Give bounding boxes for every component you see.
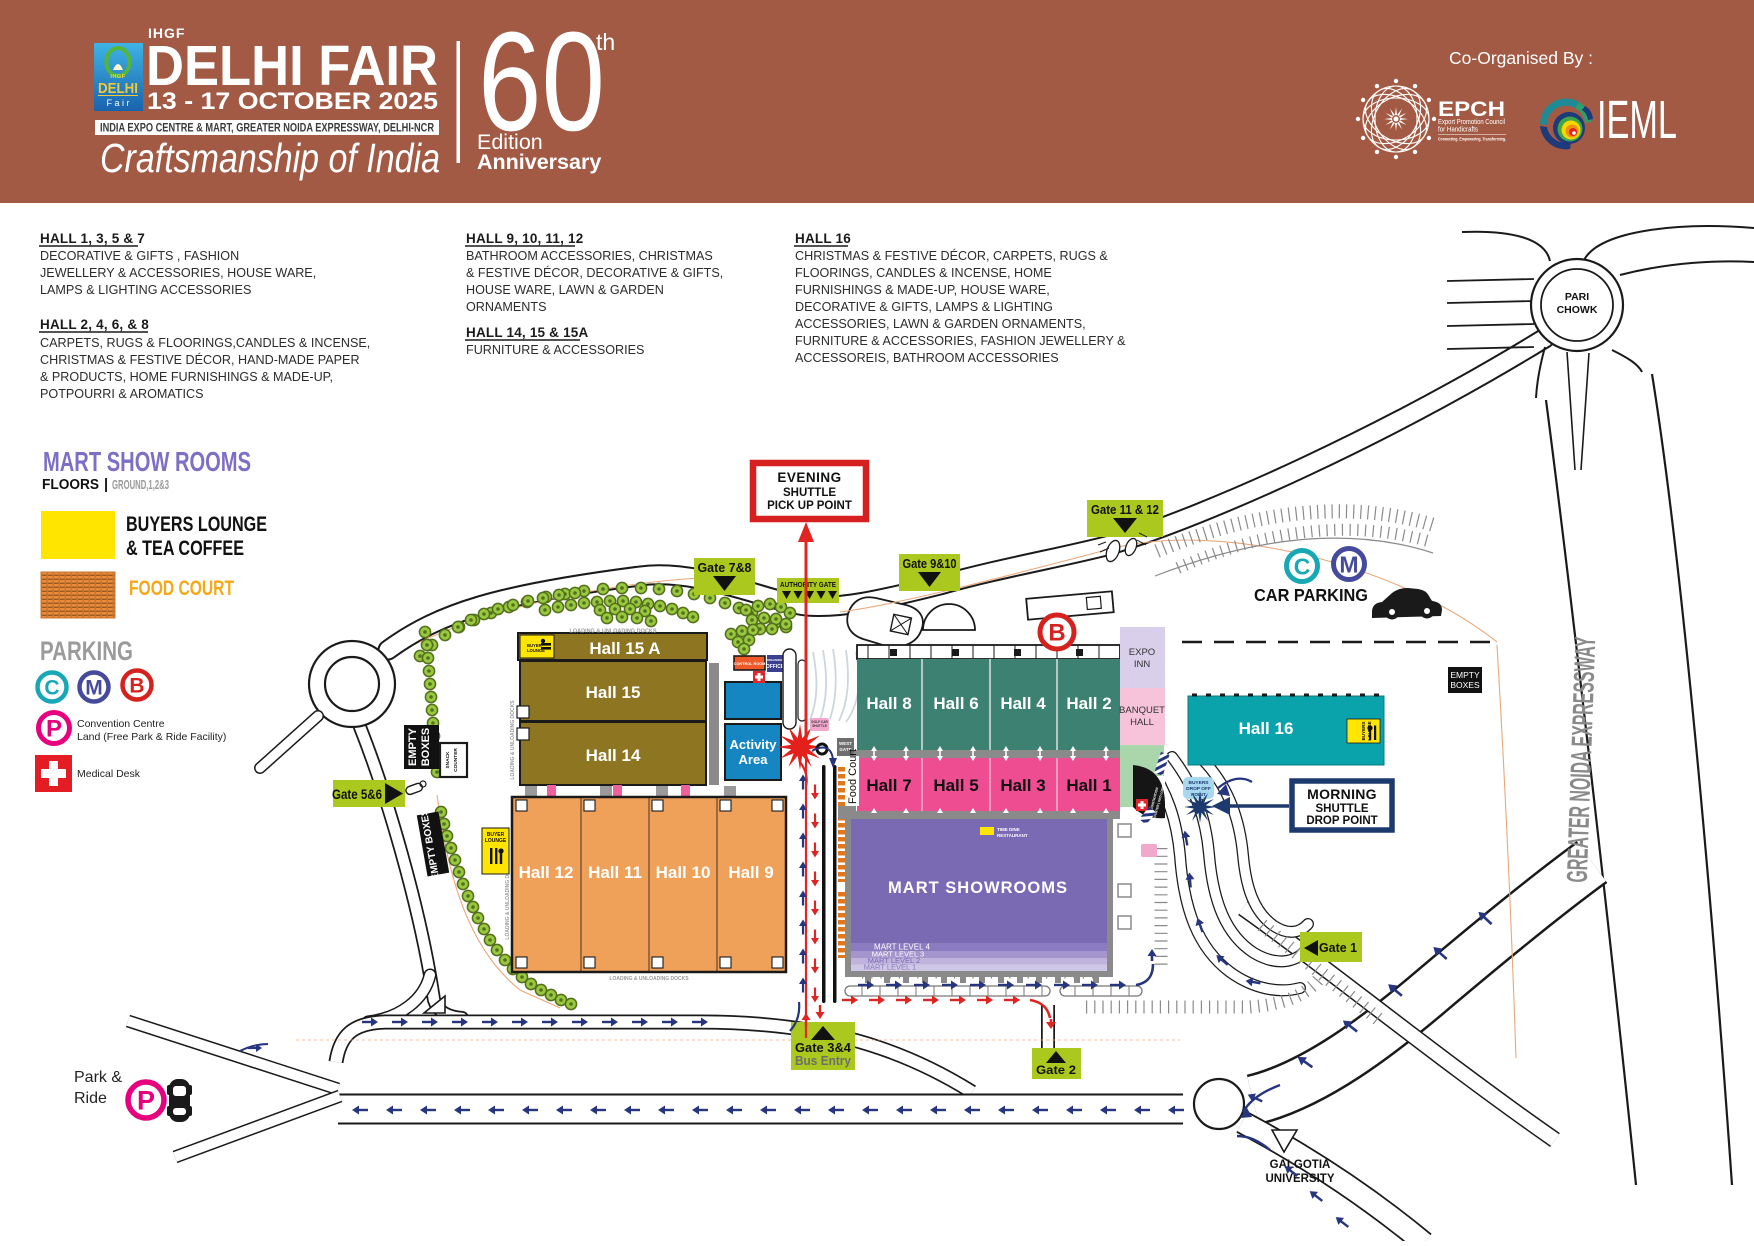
svg-text:PICK UP POINT: PICK UP POINT (767, 500, 852, 512)
svg-text:B: B (1048, 620, 1065, 647)
svg-text:SHUTTLE: SHUTTLE (1315, 803, 1368, 815)
svg-text:LAMPS & LIGHTING ACCESSORIES: LAMPS & LIGHTING ACCESSORIES (40, 283, 251, 297)
svg-text:ORGANIZER: ORGANIZER (767, 658, 784, 662)
svg-text:C: C (1294, 553, 1311, 579)
svg-text:OFFICE: OFFICE (766, 664, 785, 670)
svg-text:LOUNGE: LOUNGE (485, 838, 507, 844)
svg-text:GROUND,1,2&3: GROUND,1,2&3 (112, 477, 169, 492)
svg-text:Co-Organised By :: Co-Organised By : (1449, 48, 1593, 68)
svg-text:RESTAURANT: RESTAURANT (997, 833, 1028, 838)
svg-text:ACCESSORIES, LAWN & GARDEN ORN: ACCESSORIES, LAWN & GARDEN ORNAMENTS, (795, 317, 1086, 331)
svg-text:Gate 11 & 12: Gate 11 & 12 (1091, 502, 1159, 517)
svg-text:Hall 6: Hall 6 (933, 694, 978, 713)
svg-text:FLOORINGS, CANDLES & INCENSE,: FLOORINGS, CANDLES & INCENSE, HOME (795, 266, 1052, 280)
svg-text:Land (Free Park & Ride Facilit: Land (Free Park & Ride Facility) (77, 731, 226, 743)
svg-text:HALL 1, 3, 5 & 7: HALL 1, 3, 5 & 7 (40, 231, 145, 246)
svg-text:M: M (1339, 551, 1358, 577)
svg-text:Craftsmanship of India: Craftsmanship of India (100, 135, 440, 181)
svg-text:Hall 15: Hall 15 (586, 683, 641, 702)
svg-text:DECORATIVE & GIFTS, LAMPS & LI: DECORATIVE & GIFTS, LAMPS & LIGHTING (795, 300, 1053, 314)
svg-text:EXPO: EXPO (1129, 647, 1155, 658)
svg-text:Hall 7: Hall 7 (866, 776, 911, 795)
svg-text:IEML: IEML (1597, 90, 1677, 150)
svg-text:Hall 12: Hall 12 (519, 863, 574, 882)
svg-text:Medical Desk: Medical Desk (77, 768, 141, 780)
svg-text:TIME DINE: TIME DINE (997, 827, 1020, 832)
svg-text:INDIA EXPO CENTRE & MART, GREA: INDIA EXPO CENTRE & MART, GREATER NOIDA … (100, 123, 435, 135)
svg-text:Bus Entry: Bus Entry (795, 1053, 852, 1068)
svg-text:ORNAMENTS: ORNAMENTS (466, 300, 546, 314)
svg-text:HOUSE WARE, LAWN & GARDEN: HOUSE WARE, LAWN & GARDEN (466, 283, 664, 297)
svg-text:Gate 7&8: Gate 7&8 (698, 560, 752, 575)
svg-text:BATHROOM ACCESSORIES, CHRISTMA: BATHROOM ACCESSORIES, CHRISTMAS (466, 249, 713, 263)
svg-text:Gate 1: Gate 1 (1319, 941, 1357, 955)
svg-text:Hall 11: Hall 11 (588, 863, 642, 882)
svg-text:FURNITURE & ACCESSORIES: FURNITURE & ACCESSORIES (466, 343, 644, 357)
svg-text:Gate 9&10: Gate 9&10 (903, 556, 957, 571)
svg-text:HALL 16: HALL 16 (795, 231, 851, 246)
svg-text:CONTROL ROOM: CONTROL ROOM (734, 662, 766, 666)
svg-text:13 - 17 OCTOBER 2025: 13 - 17 OCTOBER 2025 (147, 88, 438, 115)
svg-text:BOXES: BOXES (420, 728, 432, 767)
svg-text:CAR PARKING: CAR PARKING (1254, 585, 1368, 605)
svg-text:PARI: PARI (1565, 291, 1589, 303)
svg-text:CHOWK: CHOWK (1557, 304, 1598, 316)
svg-text:Hall 5: Hall 5 (933, 776, 978, 795)
svg-text:AUTHORITY GATE: AUTHORITY GATE (780, 580, 836, 589)
svg-text:JEWELLERY & ACCESSORIES, HOUS: JEWELLERY & ACCESSORIES, HOUSE WARE, (40, 266, 316, 280)
svg-text:Hall 15 A: Hall 15 A (589, 639, 660, 658)
svg-text:COUNTER: COUNTER (453, 748, 459, 772)
svg-text:INN: INN (1134, 659, 1151, 670)
svg-text:Hall 4: Hall 4 (1000, 694, 1046, 713)
svg-text:& FESTIVE DÉCOR, DECORATIVE &: & FESTIVE DÉCOR, DECORATIVE & GIFTS, (466, 265, 723, 280)
svg-text:Gate 2: Gate 2 (1036, 1065, 1076, 1077)
svg-text:B: B (129, 675, 144, 698)
svg-text:HALL: HALL (1130, 717, 1154, 728)
svg-text:for Handicrafts: for Handicrafts (1438, 127, 1478, 134)
svg-text:DELHI: DELHI (98, 80, 138, 97)
svg-text:DROP OFF: DROP OFF (1186, 786, 1211, 792)
svg-text:C: C (44, 677, 59, 700)
svg-text:BUYERS LOUNGE: BUYERS LOUNGE (126, 513, 267, 536)
svg-text:BUYERS: BUYERS (1189, 780, 1210, 786)
svg-text:CHRISTMAS & FESTIVE DÉCOR, CAR: CHRISTMAS & FESTIVE DÉCOR, CARPETS, RUGS… (795, 248, 1108, 263)
svg-text:BOXES: BOXES (1450, 680, 1480, 690)
svg-text:GALGOTIA: GALGOTIA (1270, 1159, 1331, 1171)
svg-text:FOOD COURT: FOOD COURT (129, 577, 234, 600)
svg-text:SHUTTLE: SHUTTLE (783, 487, 836, 499)
svg-text:LOADING & UNLOADING DOCKS: LOADING & UNLOADING DOCKS (569, 629, 656, 635)
svg-text:Park &: Park & (74, 1069, 122, 1086)
svg-text:LOADING & UNLOADING DOCKS: LOADING & UNLOADING DOCKS (609, 976, 689, 982)
svg-text:th: th (596, 29, 615, 55)
svg-text:MORNING: MORNING (1307, 786, 1377, 802)
svg-text:WEST: WEST (839, 741, 852, 746)
svg-text:Hall 3: Hall 3 (1000, 776, 1045, 795)
svg-text:Hall 2: Hall 2 (1066, 694, 1111, 713)
svg-text:FLOORS: FLOORS (42, 477, 99, 493)
svg-text:UNIVERSITY: UNIVERSITY (1265, 1173, 1334, 1185)
svg-text:M: M (85, 677, 103, 700)
svg-text:MART LEVEL 1: MART LEVEL 1 (864, 963, 916, 972)
svg-text:& TEA COFFEE: & TEA COFFEE (126, 537, 244, 560)
svg-text:Hall 1: Hall 1 (1066, 776, 1111, 795)
svg-text:Gate 5&6: Gate 5&6 (332, 786, 382, 802)
svg-text:Anniversary: Anniversary (477, 150, 601, 174)
svg-text:FURNISHINGS & MADE-UP, HOUSE W: FURNISHINGS & MADE-UP, HOUSE WARE, (795, 283, 1050, 297)
svg-text:CHRISTMAS & FESTIVE DÉCOR, HAN: CHRISTMAS & FESTIVE DÉCOR, HAND-MADE PAP… (40, 352, 360, 367)
svg-text:BANQUET: BANQUET (1119, 705, 1165, 716)
svg-text:EMPTY: EMPTY (407, 727, 419, 766)
svg-text:MART SHOW ROOMS: MART SHOW ROOMS (43, 446, 251, 477)
svg-text:Convention Centre: Convention Centre (77, 718, 165, 730)
svg-text:Export Promotion Council: Export Promotion Council (1438, 119, 1505, 126)
svg-text:|: | (104, 477, 108, 493)
svg-text:SNACK: SNACK (445, 751, 451, 769)
svg-text:F a i r: F a i r (106, 98, 129, 108)
svg-text:HALL 2, 4, 6, & 8: HALL 2, 4, 6, & 8 (40, 317, 149, 332)
svg-text:Ride: Ride (74, 1090, 107, 1107)
svg-text:Hall 8: Hall 8 (866, 694, 911, 713)
svg-text:DROP POINT: DROP POINT (1306, 815, 1377, 827)
svg-text:SHUTTLE: SHUTTLE (812, 724, 827, 728)
svg-text:Connecting. Empowering. Transf: Connecting. Empowering. Transforming. (1438, 137, 1506, 142)
svg-text:HALL 14, 15 & 15A: HALL 14, 15 & 15A (466, 325, 588, 340)
svg-text:LOADING & UNLOADING DOCKS: LOADING & UNLOADING DOCKS (510, 700, 516, 780)
svg-text:EPCH: EPCH (1438, 98, 1505, 121)
svg-text:& PRODUCTS, HOME FURNISHINGS &: & PRODUCTS, HOME FURNISHINGS & MADE-UP, (40, 370, 333, 384)
svg-text:EMPTY: EMPTY (1450, 670, 1480, 680)
svg-text:DECORATIVE & GIFTS , FASHION: DECORATIVE & GIFTS , FASHION (40, 249, 239, 263)
svg-text:Food Court: Food Court (847, 749, 859, 804)
svg-text:ACCESSOREIS, BATHROOM ACCESSOR: ACCESSOREIS, BATHROOM ACCESSORIES (795, 351, 1059, 365)
svg-text:PARKING: PARKING (40, 636, 133, 666)
svg-text:Hall 9: Hall 9 (728, 863, 773, 882)
svg-text:Hall 10: Hall 10 (656, 863, 711, 882)
svg-text:Area: Area (739, 752, 769, 767)
svg-text:FURNITURE & ACCESSORIES, FASH: FURNITURE & ACCESSORIES, FASHION JEWELLE… (795, 334, 1126, 348)
svg-text:Activity: Activity (730, 737, 778, 752)
svg-text:HALL 9, 10, 11, 12: HALL 9, 10, 11, 12 (466, 231, 583, 246)
svg-text:CARPETS, RUGS & FLOORINGS,CAND: CARPETS, RUGS & FLOORINGS,CANDLES & INCE… (40, 336, 370, 350)
svg-text:Hall 14: Hall 14 (586, 746, 641, 765)
svg-text:P: P (46, 716, 62, 743)
svg-text:Hall 16: Hall 16 (1239, 719, 1294, 738)
svg-text:EVENING: EVENING (777, 470, 841, 485)
svg-text:P: P (137, 1086, 155, 1116)
svg-text:POTPOURRI & AROMATICS: POTPOURRI & AROMATICS (40, 387, 204, 401)
svg-text:MART SHOWROOMS: MART SHOWROOMS (888, 879, 1068, 897)
svg-text:BUYERS: BUYERS (1361, 722, 1366, 741)
